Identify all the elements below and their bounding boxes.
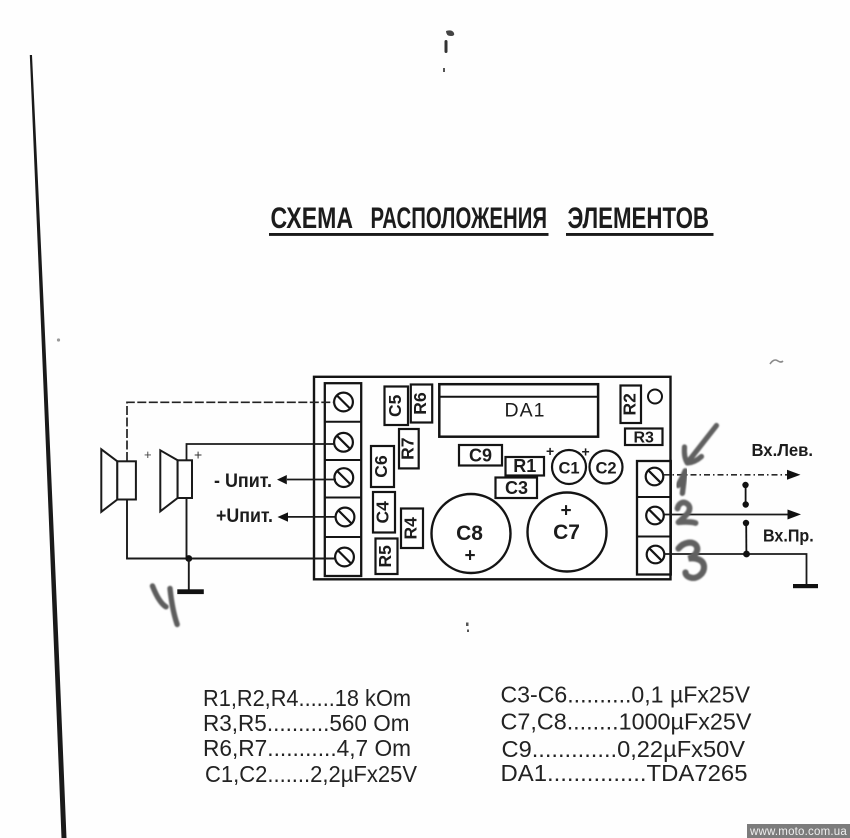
svg-text:C4: C4 <box>373 501 393 524</box>
svg-text:R1,R2,R4......18 kOm: R1,R2,R4......18 kOm <box>203 685 411 711</box>
svg-text:Вх.Лев.: Вх.Лев. <box>752 440 814 460</box>
svg-text:R1: R1 <box>513 456 536 476</box>
svg-text:R6,R7...........4,7 Om: R6,R7...........4,7 Om <box>203 735 411 761</box>
svg-text:R3: R3 <box>633 429 654 446</box>
svg-text:C3: C3 <box>505 478 528 498</box>
svg-text:DA1...............TDA7265: DA1...............TDA7265 <box>501 760 748 786</box>
svg-text:DA1: DA1 <box>505 400 546 422</box>
svg-text:C8: C8 <box>456 522 483 545</box>
svg-text:+: + <box>194 447 202 463</box>
svg-text:C7,C8........1000µFx25V: C7,C8........1000µFx25V <box>501 709 753 735</box>
svg-text:+: + <box>465 546 476 567</box>
svg-text:R2: R2 <box>619 393 639 416</box>
svg-text:- Uпит.: - Uпит. <box>214 471 272 492</box>
svg-text:+: + <box>144 447 152 462</box>
svg-text:www.moto.com.ua: www.moto.com.ua <box>749 826 847 838</box>
svg-text:C7: C7 <box>553 521 580 544</box>
svg-text:РАСПОЛОЖЕНИЯ: РАСПОЛОЖЕНИЯ <box>371 202 548 235</box>
svg-text:+: + <box>561 501 572 522</box>
svg-text:+: + <box>582 444 590 460</box>
svg-text:R7: R7 <box>397 438 417 460</box>
svg-text:R5: R5 <box>375 545 395 568</box>
svg-text:C9.............0,22µFx50V: C9.............0,22µFx50V <box>502 736 746 762</box>
svg-text:C9: C9 <box>469 446 492 466</box>
svg-text:СХЕМА: СХЕМА <box>271 202 354 235</box>
svg-text:Вх.Пр.: Вх.Пр. <box>763 526 814 546</box>
svg-text:R3,R5..........560 Om: R3,R5..........560 Om <box>203 710 410 736</box>
svg-text:C5: C5 <box>385 394 405 417</box>
svg-text:C6: C6 <box>371 455 391 478</box>
svg-text:C2: C2 <box>595 460 616 478</box>
svg-text:ЭЛЕМЕНТОВ: ЭЛЕМЕНТОВ <box>568 202 710 235</box>
svg-text:+Uпит.: +Uпит. <box>216 506 273 527</box>
svg-text:C1,C2.......2,2µFx25V: C1,C2.......2,2µFx25V <box>205 761 418 787</box>
svg-text:C1: C1 <box>558 460 579 478</box>
svg-text:R4: R4 <box>401 517 421 540</box>
svg-text:C3-C6..........0,1 µFx25V: C3-C6..........0,1 µFx25V <box>501 682 751 708</box>
svg-text:R6: R6 <box>410 392 430 415</box>
svg-text:+: + <box>546 443 554 459</box>
